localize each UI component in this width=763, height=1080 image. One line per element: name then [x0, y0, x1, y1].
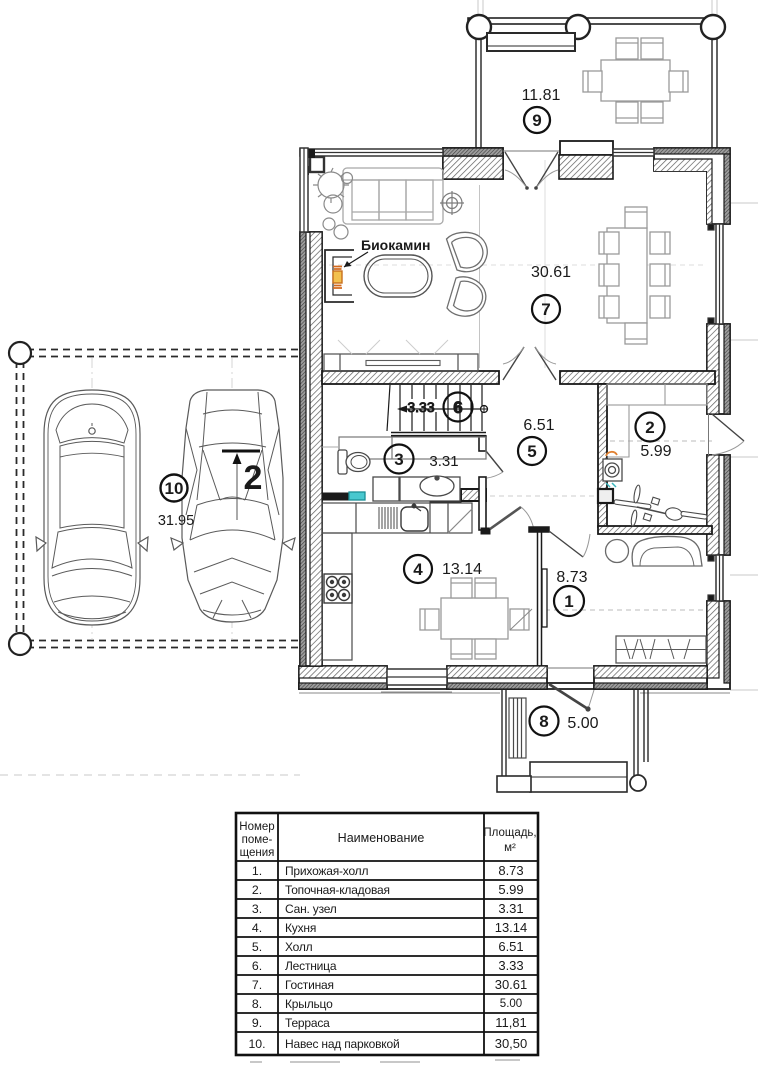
svg-text:9: 9 — [532, 111, 541, 130]
svg-text:30,50: 30,50 — [495, 1036, 528, 1051]
svg-text:Лестница: Лестница — [285, 959, 337, 973]
svg-text:5.00: 5.00 — [567, 715, 598, 732]
svg-text:8.73: 8.73 — [556, 569, 587, 586]
svg-text:11,81: 11,81 — [495, 1015, 527, 1030]
svg-text:щения: щения — [240, 847, 275, 859]
svg-text:Крыльцо: Крыльцо — [285, 997, 333, 1011]
svg-text:Наименование: Наименование — [338, 831, 425, 845]
svg-text:2: 2 — [244, 459, 263, 497]
svg-text:3: 3 — [394, 450, 403, 469]
svg-text:Кухня: Кухня — [285, 921, 316, 935]
svg-text:30.61: 30.61 — [495, 977, 528, 992]
svg-text:Топочная-кладовая: Топочная-кладовая — [285, 883, 390, 897]
svg-text:5.: 5. — [252, 940, 262, 954]
svg-text:10: 10 — [165, 479, 184, 498]
svg-text:30.61: 30.61 — [531, 264, 571, 281]
svg-text:Прихожая-холл: Прихожая-холл — [285, 864, 368, 878]
svg-text:8.: 8. — [252, 997, 262, 1011]
svg-text:3.31: 3.31 — [429, 453, 458, 470]
svg-text:13.14: 13.14 — [442, 561, 482, 578]
svg-text:5.99: 5.99 — [640, 443, 671, 460]
svg-text:5: 5 — [527, 442, 536, 461]
svg-text:5.99: 5.99 — [498, 882, 523, 897]
svg-text:5.00: 5.00 — [500, 998, 522, 1010]
svg-text:Биокамин: Биокамин — [361, 237, 430, 253]
svg-text:13.14: 13.14 — [495, 920, 528, 935]
svg-text:1.: 1. — [252, 864, 262, 878]
svg-text:6.: 6. — [252, 959, 262, 973]
svg-text:6: 6 — [453, 398, 462, 417]
svg-text:4.: 4. — [252, 921, 262, 935]
svg-text:Номер: Номер — [239, 821, 274, 833]
svg-text:10.: 10. — [248, 1037, 265, 1051]
svg-text:7.: 7. — [252, 978, 262, 992]
svg-text:Гостиная: Гостиная — [285, 978, 334, 992]
svg-text:31.95: 31.95 — [158, 513, 194, 529]
svg-text:8.73: 8.73 — [498, 863, 523, 878]
svg-text:6.51: 6.51 — [523, 417, 554, 434]
svg-text:9.: 9. — [252, 1016, 262, 1030]
svg-text:4: 4 — [413, 560, 423, 579]
svg-text:3.33: 3.33 — [498, 958, 523, 973]
svg-text:3.: 3. — [252, 902, 262, 916]
svg-text:Навес над парковкой: Навес над парковкой — [285, 1037, 399, 1051]
svg-text:поме-: поме- — [242, 834, 273, 846]
svg-text:2: 2 — [645, 418, 654, 437]
svg-text:2.: 2. — [252, 883, 262, 897]
svg-text:7: 7 — [541, 300, 550, 319]
svg-text:3.31: 3.31 — [498, 901, 523, 916]
svg-text:Холл: Холл — [285, 940, 313, 954]
svg-text:8: 8 — [539, 712, 548, 731]
svg-text:Площадь,: Площадь, — [483, 827, 536, 839]
svg-text:Терраса: Терраса — [285, 1016, 330, 1030]
svg-text:Сан. узел: Сан. узел — [285, 902, 337, 916]
svg-text:3.33: 3.33 — [407, 399, 434, 415]
svg-text:6.51: 6.51 — [498, 939, 523, 954]
svg-text:1: 1 — [564, 592, 573, 611]
svg-text:м²: м² — [504, 842, 516, 854]
svg-text:11.81: 11.81 — [522, 87, 561, 104]
